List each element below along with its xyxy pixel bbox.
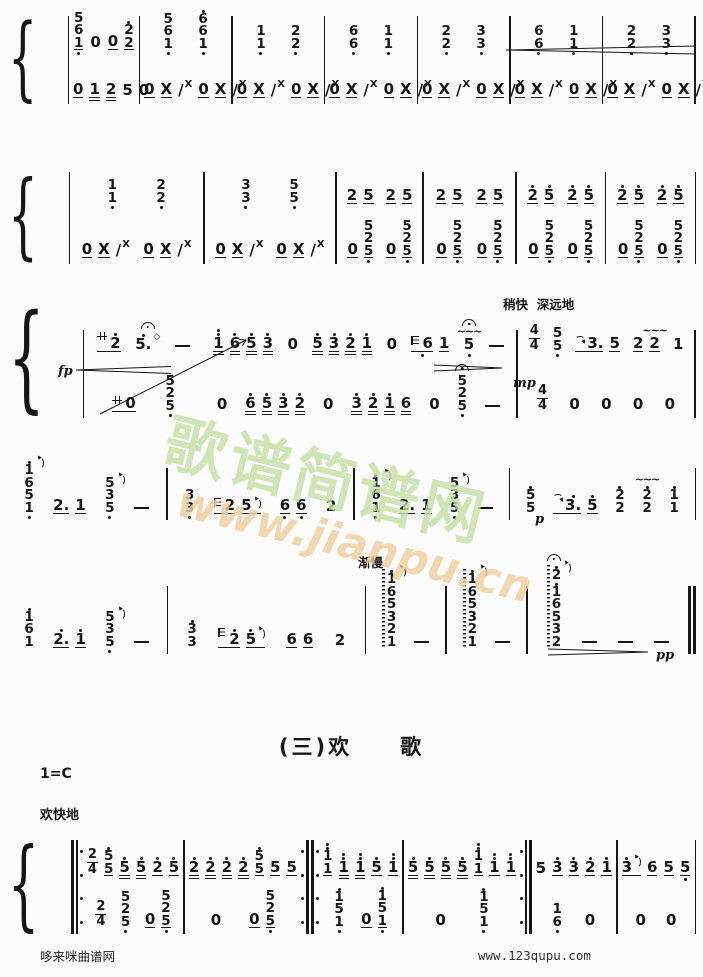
note-main: 2 bbox=[368, 392, 378, 411]
digit-col: 6 bbox=[280, 498, 290, 513]
digit-col: X bbox=[307, 82, 319, 97]
digit-col: 1 bbox=[489, 852, 499, 875]
underline-zone bbox=[95, 928, 106, 936]
digit: 2 bbox=[205, 860, 215, 875]
note-main: 11 bbox=[323, 842, 332, 875]
digit: 3 bbox=[278, 396, 288, 411]
barline-thick bbox=[311, 840, 314, 934]
note-token: X bbox=[250, 82, 268, 106]
beam-group: 61 bbox=[408, 336, 452, 360]
score-glyph bbox=[215, 498, 221, 499]
underline-zone bbox=[463, 648, 477, 656]
low-octave-dot bbox=[572, 52, 575, 55]
beam-group: 21 bbox=[582, 856, 615, 884]
system-brace: { bbox=[8, 836, 39, 934]
digit: 2 bbox=[368, 396, 378, 411]
note-main: 525 bbox=[634, 220, 643, 258]
digit-col: / bbox=[456, 83, 461, 98]
measure-line: 2525 bbox=[425, 168, 514, 212]
note-token: 3. bbox=[572, 336, 606, 360]
beam-group: 561 bbox=[161, 13, 176, 59]
measure-line: 165321 bbox=[448, 568, 526, 656]
note-token: 525 bbox=[671, 220, 686, 267]
note-main: 2 bbox=[347, 188, 357, 203]
underline-zone bbox=[307, 97, 319, 106]
underline-zone bbox=[175, 352, 190, 360]
note-token: 5 bbox=[405, 856, 421, 884]
beam-group: 22 bbox=[153, 179, 168, 212]
note-token: /X bbox=[360, 83, 380, 106]
note-main: 6 bbox=[411, 336, 432, 351]
low-octave-dot bbox=[421, 354, 424, 357]
barline bbox=[203, 172, 205, 264]
digit-col: 0 bbox=[607, 82, 617, 97]
digit-col: / bbox=[177, 243, 182, 258]
second-underline bbox=[278, 414, 288, 415]
barline bbox=[520, 840, 532, 934]
second-underline bbox=[238, 878, 248, 879]
beam-group: 66 bbox=[283, 632, 316, 656]
digit: 1 bbox=[355, 860, 365, 875]
note-token: X bbox=[490, 82, 508, 106]
underline-zone bbox=[696, 98, 703, 106]
underline-zone bbox=[347, 257, 357, 266]
beam-group: 0X/X bbox=[212, 242, 266, 266]
underline-zone bbox=[678, 97, 690, 106]
note-main: 11 bbox=[108, 179, 117, 204]
note-token: 535 bbox=[447, 477, 462, 523]
digit: 0 bbox=[476, 82, 486, 97]
underline-zone bbox=[105, 648, 114, 656]
digit: 2 bbox=[225, 498, 235, 513]
digit: 1 bbox=[384, 396, 394, 411]
note-token: 2 bbox=[202, 856, 218, 884]
note-main: X bbox=[400, 82, 412, 97]
note-token: 1 bbox=[72, 628, 88, 656]
digit-col: 2 bbox=[347, 188, 357, 203]
note-token: 0 bbox=[662, 397, 678, 420]
digit-col: 2 bbox=[345, 332, 355, 351]
system-brace: { bbox=[8, 12, 37, 104]
digit: 2 bbox=[189, 860, 199, 875]
underline-zone bbox=[329, 97, 339, 106]
digit: 2 bbox=[476, 188, 486, 203]
ts-numerator: 2 bbox=[88, 849, 97, 861]
music-system-1: {5610022012505616610X/X0X/X11220X/X0X/X6… bbox=[8, 10, 697, 106]
underline-zone bbox=[609, 351, 619, 360]
digit: 0 bbox=[567, 242, 577, 257]
note-main: 0 bbox=[112, 396, 135, 411]
note-token: 24 bbox=[92, 901, 109, 937]
digit: 5 bbox=[464, 337, 474, 352]
note-token: 5 bbox=[309, 332, 325, 360]
beam-group bbox=[131, 507, 152, 523]
underline-zone bbox=[296, 513, 306, 522]
underline-zone bbox=[436, 203, 446, 212]
underline-zone bbox=[386, 203, 396, 212]
digit: X bbox=[215, 82, 227, 97]
digit-col: 5 bbox=[371, 856, 381, 875]
note-token: X bbox=[157, 242, 175, 266]
note-token: /X bbox=[638, 83, 658, 106]
underline-zone bbox=[647, 875, 657, 884]
beam-group: 3.5 bbox=[550, 494, 601, 522]
note-main: 525 bbox=[166, 375, 175, 413]
barline bbox=[71, 840, 83, 934]
digit: 5 bbox=[441, 860, 451, 875]
underline-zone bbox=[323, 875, 332, 884]
note-token: 525 bbox=[263, 890, 278, 937]
note-main: 22 bbox=[615, 485, 624, 514]
digit-col: 5 bbox=[119, 856, 129, 875]
underline-zone bbox=[136, 875, 146, 884]
digit: 5 bbox=[363, 188, 373, 203]
digit-col: 0 bbox=[435, 913, 445, 928]
note-main: 22 bbox=[441, 25, 450, 50]
beam-group: 151 bbox=[331, 887, 346, 937]
note-token: 0 bbox=[473, 82, 489, 106]
measure-line: 0X/X0X/X bbox=[71, 218, 202, 266]
note-token: 2 bbox=[564, 184, 580, 212]
note-main: 22 bbox=[642, 485, 651, 514]
measure-line: 2525 bbox=[338, 168, 421, 212]
note-main: 5 bbox=[312, 332, 322, 351]
digit: 0 bbox=[666, 913, 676, 928]
note-main: 33 bbox=[662, 25, 671, 50]
stack-digit: 1 bbox=[108, 192, 117, 205]
note-main: 5 bbox=[286, 860, 296, 875]
yaozhi-ornament-icon bbox=[218, 628, 226, 638]
note-main: 55 bbox=[289, 179, 298, 204]
superscript-x: X bbox=[184, 237, 192, 252]
underline-zone bbox=[291, 50, 300, 58]
measure: 25.◇0525 bbox=[85, 312, 202, 420]
chord-stack: 561 bbox=[74, 12, 83, 50]
underline-zone bbox=[439, 351, 449, 360]
digit-col: X bbox=[346, 82, 358, 97]
digit-col: 0 bbox=[662, 82, 672, 97]
repeat-dots bbox=[301, 840, 304, 934]
chord-stack: 33 bbox=[662, 25, 671, 50]
beam-group: 33 bbox=[473, 25, 488, 58]
note-main: 0 bbox=[422, 82, 432, 97]
low-octave-dot bbox=[108, 650, 111, 653]
duration-dash bbox=[489, 345, 504, 348]
chord-stack: 33 bbox=[476, 25, 485, 50]
digit-col: / bbox=[696, 83, 701, 98]
note-token: 33 bbox=[184, 619, 199, 656]
note-token: 561 bbox=[71, 12, 86, 59]
note-token: /X bbox=[175, 83, 195, 106]
note-main: 1 bbox=[439, 336, 449, 351]
system-row: 25.◇0525165305321061~~~50653203216052544… bbox=[82, 296, 697, 420]
note-main: 22 bbox=[156, 179, 165, 204]
beam-group: 0 bbox=[426, 397, 442, 420]
digit-col: 3 bbox=[278, 392, 288, 411]
note-token: 0 bbox=[474, 242, 490, 266]
digit-col: 0 bbox=[144, 82, 154, 97]
underline-zone bbox=[549, 98, 563, 106]
repeat-dot bbox=[301, 897, 304, 900]
measure-line: 16512.1535 bbox=[8, 464, 165, 522]
underline-zone bbox=[569, 412, 579, 420]
digit-col: 0 bbox=[90, 35, 100, 50]
note-token: 2 bbox=[582, 856, 598, 884]
note-token: 0 bbox=[246, 912, 262, 936]
measure-line: 6611 bbox=[326, 12, 415, 58]
underline-zone bbox=[673, 203, 683, 212]
note-main: 2 bbox=[238, 856, 248, 875]
note-token: 2 bbox=[654, 184, 670, 212]
barline-thin bbox=[166, 468, 168, 520]
repeat-dot bbox=[520, 897, 523, 900]
underline-zone bbox=[177, 258, 191, 266]
note-token: 1 bbox=[486, 852, 502, 884]
digit: X bbox=[493, 82, 505, 97]
note-token: 2 bbox=[292, 392, 308, 420]
digit: 0 bbox=[361, 912, 371, 927]
measure-line: 1612.1535 bbox=[356, 464, 508, 522]
beam-group: 0 bbox=[432, 913, 448, 936]
note-main: 5 bbox=[363, 188, 373, 203]
barline-thin bbox=[203, 172, 205, 264]
underline-zone bbox=[104, 875, 113, 884]
repeat-dots bbox=[520, 840, 523, 934]
note-token: 6 bbox=[293, 498, 309, 522]
digit: 5 bbox=[286, 860, 296, 875]
beam-group: 33 bbox=[659, 25, 674, 58]
digit-col: X bbox=[215, 82, 227, 97]
note-main: 6 bbox=[296, 498, 306, 513]
underline-zone bbox=[662, 97, 672, 106]
repeat-dot bbox=[301, 921, 304, 924]
underline-zone bbox=[355, 875, 365, 884]
underline-zone bbox=[584, 203, 594, 212]
underline-zone bbox=[262, 411, 272, 420]
note-main: 0 bbox=[657, 242, 667, 257]
note-main: 0 bbox=[276, 242, 286, 257]
repeat-dot bbox=[80, 921, 83, 924]
note-main: 5 bbox=[584, 184, 594, 203]
beam-group: 5.◇ bbox=[132, 333, 163, 360]
beam-group: 25 bbox=[564, 184, 597, 212]
note-token: 161 bbox=[368, 473, 383, 523]
digit: X bbox=[307, 82, 319, 97]
beam-group bbox=[482, 405, 503, 421]
digit-col: 2 bbox=[527, 184, 537, 203]
underline-zone bbox=[633, 351, 643, 360]
chord-stack: 33 bbox=[187, 619, 196, 648]
underline-zone bbox=[253, 97, 265, 106]
beam-group: 6532 bbox=[242, 392, 308, 420]
dot bbox=[342, 853, 345, 856]
barline-thin bbox=[422, 172, 424, 264]
measure-line: 5610022 bbox=[70, 12, 138, 58]
underline-zone bbox=[567, 203, 577, 212]
beam-group: 0525 bbox=[383, 220, 415, 267]
music-system-2: {11220X/X0X/X33550X/X0X/X252505250525252… bbox=[8, 166, 697, 266]
low-octave-dot bbox=[480, 52, 483, 55]
low-octave-dot bbox=[387, 52, 390, 55]
digit-col: 5 bbox=[587, 494, 597, 513]
stack-digit: 5 bbox=[674, 245, 683, 258]
underline-zone bbox=[618, 648, 633, 656]
digit: X bbox=[438, 82, 450, 97]
digit-col: 5 bbox=[544, 184, 554, 203]
note-main: 55 bbox=[255, 846, 264, 875]
underline-zone bbox=[198, 50, 207, 58]
note-token: 5 bbox=[631, 184, 647, 212]
digit: 0 bbox=[73, 82, 83, 97]
beam-group: 5 bbox=[119, 83, 135, 106]
chord-stack: 525 bbox=[545, 220, 554, 258]
note-token: 0 bbox=[195, 82, 211, 106]
note-main: /X bbox=[177, 243, 191, 258]
note-token: X bbox=[582, 82, 600, 106]
chord-stack: 525 bbox=[584, 220, 593, 258]
beam-group: 44 bbox=[526, 325, 543, 361]
note-main: X bbox=[307, 82, 319, 97]
note-token: 0 bbox=[598, 397, 614, 420]
footer-url: www.123qupu.com bbox=[478, 948, 591, 963]
repeat-dot bbox=[316, 897, 319, 900]
digit-col: 6 bbox=[296, 498, 306, 513]
barline-thin bbox=[694, 330, 696, 418]
underline-zone bbox=[666, 928, 676, 936]
underline-zone bbox=[567, 257, 577, 266]
underline-zone bbox=[536, 876, 546, 884]
note-token: 6 bbox=[242, 392, 258, 420]
beam-group: 2.1 bbox=[396, 498, 435, 522]
beam-group: 535 bbox=[447, 477, 462, 523]
digit: 0 bbox=[569, 397, 579, 412]
system-brace: { bbox=[8, 169, 38, 263]
beam-group: 0 bbox=[598, 397, 614, 420]
second-underline bbox=[339, 878, 349, 879]
digit-col: 6 bbox=[245, 392, 255, 411]
beam-group: 25 bbox=[211, 498, 264, 522]
note-main: 0 bbox=[636, 913, 646, 928]
second-underline bbox=[189, 878, 199, 879]
beam-group: 11 bbox=[253, 25, 268, 58]
beam-group: 0X/X bbox=[419, 82, 473, 106]
note-token: X bbox=[158, 82, 176, 106]
beam-group bbox=[615, 641, 636, 657]
chord-stack: 661 bbox=[198, 9, 207, 51]
low-octave-dot bbox=[456, 260, 459, 263]
low-octave-dot bbox=[367, 260, 370, 263]
measure: 22330X/X0X/X bbox=[604, 12, 693, 106]
sheet-music-page: {5610022012505616610X/X0X/X11220X/X0X/X6… bbox=[0, 0, 703, 977]
superscript-x: X bbox=[185, 77, 193, 92]
digit-col: 0 bbox=[211, 913, 221, 928]
chord-stack: 33 bbox=[185, 489, 194, 514]
underline-zone bbox=[271, 98, 285, 106]
digit: 0 bbox=[291, 82, 301, 97]
barline-thin bbox=[515, 172, 517, 264]
underline-zone bbox=[362, 351, 372, 360]
underline-zone bbox=[587, 513, 597, 522]
digit: 5 bbox=[408, 860, 418, 875]
note-token: 5 bbox=[661, 860, 677, 884]
digit: 6 bbox=[245, 396, 255, 411]
beam-group: 0525 bbox=[525, 220, 557, 267]
chord-stack: 22 bbox=[441, 25, 450, 50]
stack-digit: 5 bbox=[266, 915, 275, 928]
underline-zone bbox=[349, 50, 358, 58]
digit-col: 0 bbox=[515, 82, 525, 97]
underline-zone bbox=[575, 351, 603, 360]
digit: 0 bbox=[585, 913, 595, 928]
beam-group: 66 bbox=[531, 25, 546, 58]
repeat-dot bbox=[316, 921, 319, 924]
chord-stack: 16 bbox=[552, 903, 561, 928]
note-token: 3 bbox=[348, 392, 364, 420]
underline-zone bbox=[112, 411, 135, 420]
digit: 0 bbox=[657, 242, 667, 257]
digit: 2 bbox=[527, 188, 537, 203]
underline-zone bbox=[534, 50, 543, 58]
digit: X bbox=[678, 82, 690, 97]
note-main: 525 bbox=[458, 375, 467, 413]
note-main: 0 bbox=[73, 82, 83, 97]
note-token: 0 bbox=[79, 242, 95, 266]
beam-group: 0X/X bbox=[326, 82, 380, 106]
barline bbox=[694, 330, 696, 418]
digit: 2 bbox=[222, 860, 232, 875]
measure: 5616610X/X0X/X bbox=[141, 12, 230, 106]
digit-col: 2 bbox=[238, 856, 248, 875]
underline-zone bbox=[493, 257, 502, 266]
note-token: 2 bbox=[344, 188, 360, 212]
underline-zone bbox=[441, 50, 450, 58]
barline bbox=[183, 840, 185, 934]
note-main: 216532 bbox=[547, 565, 561, 648]
beam-group: 0 bbox=[662, 397, 678, 420]
note-main: 5 bbox=[241, 498, 260, 513]
yaozhi-ornament-icon bbox=[214, 498, 222, 508]
underline-zone bbox=[289, 204, 298, 212]
barline-thin bbox=[509, 468, 511, 520]
low-octave-dot bbox=[374, 516, 377, 519]
digit-col: 2 bbox=[326, 499, 336, 514]
underline-zone bbox=[411, 351, 432, 360]
beam-group: 25 bbox=[614, 184, 647, 212]
note-main: 22 bbox=[627, 25, 636, 50]
note-main: 66 bbox=[349, 25, 358, 50]
superscript-x: X bbox=[463, 77, 471, 92]
note-main: 0 bbox=[436, 242, 446, 257]
huazhi-ornament-icon bbox=[97, 332, 107, 342]
beam-group: 11 bbox=[566, 25, 581, 58]
digit: 2 bbox=[649, 336, 659, 351]
low-octave-dot bbox=[587, 260, 590, 263]
arpeggio-wavy-line bbox=[547, 565, 550, 648]
beam-group: 161 bbox=[368, 473, 383, 523]
underline-zone bbox=[634, 203, 644, 212]
note-main: 5 bbox=[680, 860, 690, 875]
underline-zone bbox=[363, 203, 373, 212]
note-main: 0 bbox=[435, 913, 445, 928]
beam-group: 0 bbox=[630, 397, 646, 420]
note-token: 33 bbox=[238, 179, 253, 212]
note-main: 0 bbox=[569, 82, 579, 97]
note-token: 6 bbox=[283, 632, 299, 656]
measure-line: 0X/X0X/X bbox=[419, 62, 508, 106]
note-token: 55 bbox=[101, 846, 116, 884]
digit: 0 bbox=[108, 34, 118, 49]
second-underline bbox=[362, 354, 372, 355]
